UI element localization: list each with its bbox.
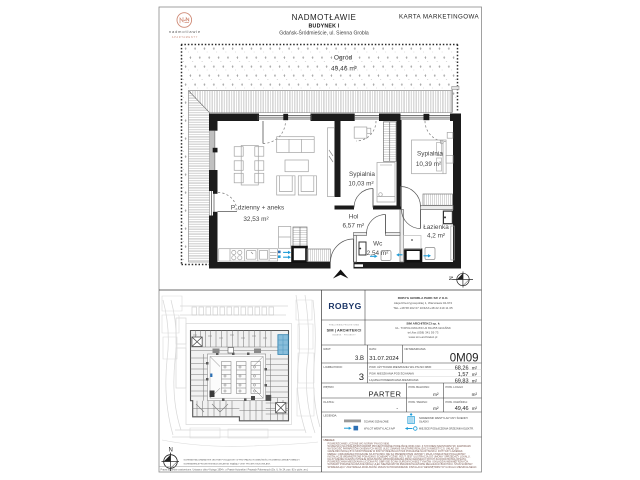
svg-text:N: N	[449, 276, 455, 280]
svg-text:m²: m²	[433, 392, 439, 397]
svg-text:69,83: 69,83	[455, 378, 469, 384]
svg-text:nadmotławie: nadmotławie	[169, 29, 201, 34]
svg-text:1,57: 1,57	[458, 372, 469, 378]
svg-text:NADMOTŁAWIE: NADMOTŁAWIE	[292, 13, 357, 22]
svg-text:ŁĄCZNA POWIERZCHNIA MIESZKANIA: ŁĄCZNA POWIERZCHNIA MIESZKANIA:	[369, 378, 419, 382]
svg-text:TEL +48 58 202 07 10/FAX+48 22: TEL +48 58 202 07 10/FAX+48 22 419 11 05	[393, 306, 453, 310]
svg-text:SCHEMATEM A PROJEKTEM BUDOWLAN: SCHEMATEM A PROJEKTEM BUDOWLANYM, WIĄŻĄC…	[184, 462, 271, 465]
svg-text:RZUT:: RZUT:	[324, 347, 332, 351]
svg-text:32,53 m²: 32,53 m²	[243, 216, 268, 223]
svg-text:NR MIESZKANIA:: NR MIESZKANIA:	[405, 347, 427, 351]
svg-text:Ogród: Ogród	[334, 55, 353, 62]
svg-text:Łazienka: Łazienka	[423, 224, 449, 231]
svg-text:www.sim-architekci.pl: www.sim-architekci.pl	[409, 335, 438, 339]
svg-text:LEGENDA:: LEGENDA:	[324, 414, 338, 418]
svg-text:49,46 m²: 49,46 m²	[331, 66, 358, 73]
svg-text:SIM ARCHITEKCI sp. k: SIM ARCHITEKCI sp. k	[406, 322, 440, 326]
svg-text:SPRZEDAJĄCY ZASTRZEGA MOŻLIWOŚ: SPRZEDAJĄCY ZASTRZEGA MOŻLIWOŚĆ ZMIAN W …	[328, 466, 478, 469]
svg-text:m²: m²	[472, 372, 478, 377]
svg-text:SIM | ARCHITEKCI: SIM | ARCHITEKCI	[327, 329, 362, 333]
svg-text:Sypialnia: Sypialnia	[417, 151, 443, 158]
svg-text:Wc: Wc	[373, 241, 383, 248]
svg-text:10,03 m²: 10,03 m²	[348, 181, 373, 188]
svg-text:LICZBA POKOI:: LICZBA POKOI:	[324, 365, 344, 369]
svg-text:KARTA MARKETINGOWA: KARTA MARKETINGOWA	[399, 14, 479, 21]
svg-text:PIĘTRO:: PIĘTRO:	[324, 385, 335, 389]
svg-text:KLATKA:: KLATKA:	[324, 400, 335, 404]
svg-text:4,2 m²: 4,2 m²	[427, 232, 445, 239]
svg-text:ROBYG GROBLA PARK SP. Z O.O.: ROBYG GROBLA PARK SP. Z O.O.	[398, 296, 449, 300]
svg-text:10,39 m²: 10,39 m²	[416, 161, 441, 168]
svg-text:BUDYNEK I: BUDYNEK I	[309, 24, 340, 30]
svg-text:Sypialnia: Sypialnia	[349, 171, 375, 178]
svg-text:POW. TARASU:: POW. TARASU:	[409, 400, 428, 404]
svg-text:3: 3	[359, 372, 364, 383]
svg-text:N: N	[169, 448, 173, 454]
svg-text:49,46: 49,46	[455, 406, 469, 412]
svg-text:68,26: 68,26	[455, 365, 469, 371]
svg-text:3.B: 3.B	[355, 356, 364, 362]
svg-text:m²: m²	[472, 406, 478, 411]
svg-text:Gdańsk-Śródmieście, ul. Sienna: Gdańsk-Śródmieście, ul. Sienna Grobla	[279, 29, 369, 37]
svg-text:31.07.2024: 31.07.2024	[369, 356, 399, 362]
svg-text:m²: m²	[472, 392, 478, 397]
svg-text:WYLOT WENTYLACJI A/P: WYLOT WENTYLACJI A/P	[364, 427, 395, 431]
svg-text:tel./fax (058) 341 59 73: tel./fax (058) 341 59 73	[408, 331, 439, 335]
svg-text:m²: m²	[472, 378, 478, 383]
svg-text:UL. TOPOLOWA 8/9 U2 80-255 GDA: UL. TOPOLOWA 8/9 U2 80-255 GDAŃSK	[395, 326, 451, 330]
svg-text:PARTER: PARTER	[368, 389, 401, 398]
svg-text:Prawa autorskie zastrzeżone. U: Prawa autorskie zastrzeżone. Ustawa z dn…	[161, 468, 309, 471]
svg-text:MIEJSCE PODŁĄCZENIA GRZEJNIKA: MIEJSCE PODŁĄCZENIA GRZEJNIKA ELEKTR.	[419, 428, 474, 431]
svg-text:SCHEMAT MA CHARAKTER JEDYNIE P: SCHEMAT MA CHARAKTER JEDYNIE POGLĄDOWY. …	[184, 458, 301, 461]
svg-text:m²: m²	[472, 365, 478, 370]
svg-text:Hol: Hol	[349, 214, 359, 221]
svg-text:DATA:: DATA:	[369, 347, 377, 351]
svg-text:PRACOWNIA PROJEKTOWA: PRACOWNIA PROJEKTOWA	[329, 324, 359, 327]
svg-text:2,54 m²: 2,54 m²	[367, 250, 389, 257]
svg-text:0M09: 0M09	[450, 353, 479, 365]
svg-text:POW. BALKONU:: POW. BALKONU:	[409, 385, 431, 389]
svg-text:Aleja Rzeczypospolitej 1, Wars: Aleja Rzeczypospolitej 1, Warszawa 02-97…	[394, 301, 453, 305]
svg-text:GŁADKI: GŁADKI	[419, 419, 429, 423]
svg-text:UWAGA:: UWAGA:	[324, 438, 336, 442]
svg-text:GDAŃSK · PROJEKTY: GDAŃSK · PROJEKTY	[332, 334, 356, 337]
svg-text:ROBYG: ROBYG	[328, 301, 361, 311]
svg-text:m²: m²	[433, 406, 439, 411]
svg-text:POW. LOGGII:: POW. LOGGII:	[446, 385, 464, 389]
svg-text:6,57 m²: 6,57 m²	[342, 223, 364, 230]
svg-text:P. dzienny + aneks: P. dzienny + aneks	[231, 205, 284, 212]
svg-text:APARTAMENTY: APARTAMENTY	[172, 36, 198, 39]
